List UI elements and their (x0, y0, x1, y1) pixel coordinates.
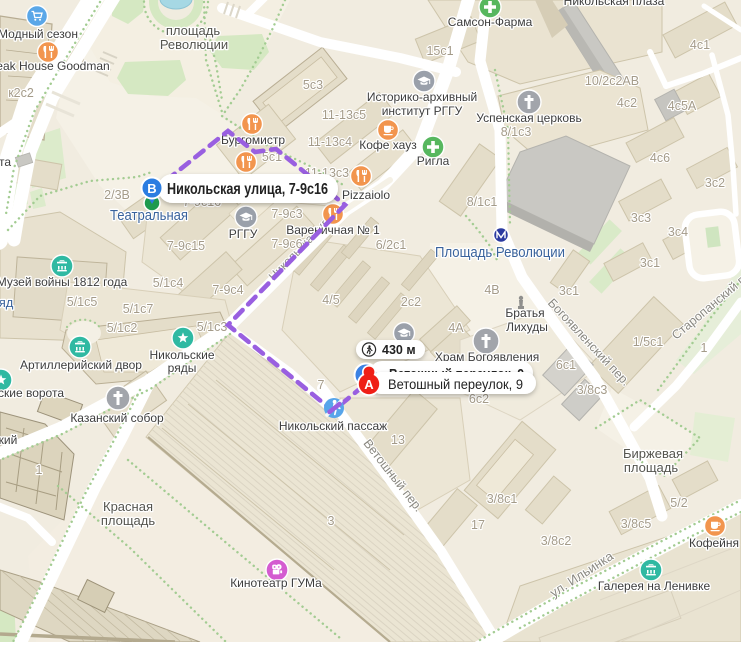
svg-text:яд: яд (0, 295, 14, 310)
svg-text:eak House Goodman: eak House Goodman (0, 59, 110, 73)
svg-text:Модный сезон: Модный сезон (0, 27, 78, 41)
svg-text:2/3В: 2/3В (104, 188, 130, 202)
svg-text:площадь: площадь (101, 513, 156, 528)
svg-text:4с2: 4с2 (617, 96, 637, 110)
svg-text:В: В (147, 181, 156, 196)
svg-text:Никольские: Никольские (149, 348, 214, 362)
svg-text:15с1: 15с1 (426, 44, 453, 58)
svg-text:площадь: площадь (624, 460, 679, 475)
svg-text:11-13с5: 11-13с5 (322, 108, 366, 122)
svg-text:430 м: 430 м (382, 343, 416, 357)
svg-text:3с1: 3с1 (559, 284, 579, 298)
svg-text:4А: 4А (448, 321, 464, 335)
svg-text:к2с2: к2с2 (8, 86, 34, 100)
svg-text:4с1: 4с1 (690, 38, 710, 52)
svg-text:Революции: Революции (160, 37, 228, 52)
svg-text:3: 3 (328, 514, 335, 528)
svg-text:7: 7 (318, 378, 325, 392)
svg-text:8/1с1: 8/1с1 (467, 195, 498, 209)
svg-text:Никольский пассаж: Никольский пассаж (279, 419, 387, 433)
svg-text:4с5А: 4с5А (668, 99, 697, 113)
svg-text:3/8с1: 3/8с1 (487, 492, 518, 506)
svg-text:Успенская церковь: Успенская церковь (476, 111, 581, 125)
svg-text:6с2: 6с2 (469, 392, 489, 406)
svg-text:10/2с2АВ: 10/2с2АВ (585, 74, 639, 88)
svg-text:Кофейня: Кофейня (689, 536, 739, 550)
svg-text:2с2: 2с2 (401, 295, 421, 309)
svg-text:Историко-архивный: Историко-архивный (367, 90, 477, 104)
svg-text:17: 17 (471, 518, 485, 532)
svg-text:8/1с3: 8/1с3 (501, 125, 532, 139)
svg-text:5/1с4: 5/1с4 (153, 276, 184, 290)
svg-text:Биржевая: Биржевая (623, 446, 683, 461)
svg-text:ские ворота: ские ворота (0, 386, 64, 400)
svg-text:5с3: 5с3 (303, 78, 323, 92)
svg-text:ряды: ряды (168, 361, 197, 375)
svg-text:5/1с5: 5/1с5 (67, 295, 98, 309)
svg-text:А: А (364, 377, 374, 392)
svg-text:институт РГГУ: институт РГГУ (382, 104, 463, 118)
svg-text:7-9с6: 7-9с6 (271, 237, 302, 251)
svg-text:3/8с3: 3/8с3 (577, 383, 608, 397)
svg-text:Площадь Революции: Площадь Революции (435, 244, 565, 261)
svg-text:1: 1 (36, 463, 43, 477)
svg-text:1: 1 (701, 341, 708, 355)
svg-text:Pizzaiolo: Pizzaiolo (342, 188, 390, 202)
svg-text:6/2с1: 6/2с1 (376, 238, 407, 252)
svg-text:Ригла: Ригла (417, 154, 450, 168)
svg-text:1/5с1: 1/5с1 (633, 335, 664, 349)
svg-text:Артиллерийский двор: Артиллерийский двор (20, 358, 142, 372)
svg-text:7-9с3: 7-9с3 (271, 207, 302, 221)
svg-text:Казанский собор: Казанский собор (70, 411, 164, 425)
svg-text:Никольская улица, 7-9с16: Никольская улица, 7-9с16 (167, 181, 328, 198)
svg-text:та: та (0, 155, 11, 169)
svg-text:6с1: 6с1 (556, 358, 576, 372)
svg-text:5/2: 5/2 (670, 496, 687, 510)
svg-text:7-9с15: 7-9с15 (167, 239, 205, 253)
svg-text:Ветошный переулок, 9: Ветошный переулок, 9 (388, 376, 523, 392)
svg-text:Кофе хауз: Кофе хауз (359, 138, 417, 152)
svg-text:3с3: 3с3 (631, 211, 651, 225)
svg-text:11-13с4: 11-13с4 (308, 135, 352, 149)
svg-text:5/1с7: 5/1с7 (123, 302, 154, 316)
svg-text:кий: кий (0, 433, 17, 447)
svg-text:5/1с3: 5/1с3 (197, 320, 228, 334)
svg-text:13: 13 (391, 433, 405, 447)
svg-text:4В: 4В (484, 283, 499, 297)
svg-text:Братья: Братья (505, 306, 544, 320)
svg-text:Вареничная № 1: Вареничная № 1 (286, 223, 380, 237)
svg-text:3/8с5: 3/8с5 (621, 517, 652, 531)
svg-text:Лихуды: Лихуды (506, 320, 548, 334)
svg-text:4/5: 4/5 (322, 293, 339, 307)
svg-text:площадь: площадь (166, 23, 221, 38)
svg-text:Кинотеатр ГУМа: Кинотеатр ГУМа (230, 576, 322, 590)
svg-text:Никольская плаза: Никольская плаза (564, 0, 665, 8)
svg-text:3с4: 3с4 (668, 225, 688, 239)
svg-text:3/8с2: 3/8с2 (541, 534, 572, 548)
svg-text:Самсон-Фарма: Самсон-Фарма (448, 15, 533, 29)
svg-text:4с6: 4с6 (650, 151, 670, 165)
svg-text:3с1: 3с1 (640, 256, 660, 270)
svg-text:Галерея на Ленивке: Галерея на Ленивке (598, 579, 711, 593)
svg-text:3с2: 3с2 (705, 176, 725, 190)
svg-text:Красная: Красная (103, 499, 153, 514)
svg-text:7-9с4: 7-9с4 (212, 283, 243, 297)
svg-text:5/1с2: 5/1с2 (107, 321, 138, 335)
svg-text:Музей войны 1812 года: Музей войны 1812 года (0, 275, 128, 289)
svg-text:РГГУ: РГГУ (229, 227, 258, 241)
